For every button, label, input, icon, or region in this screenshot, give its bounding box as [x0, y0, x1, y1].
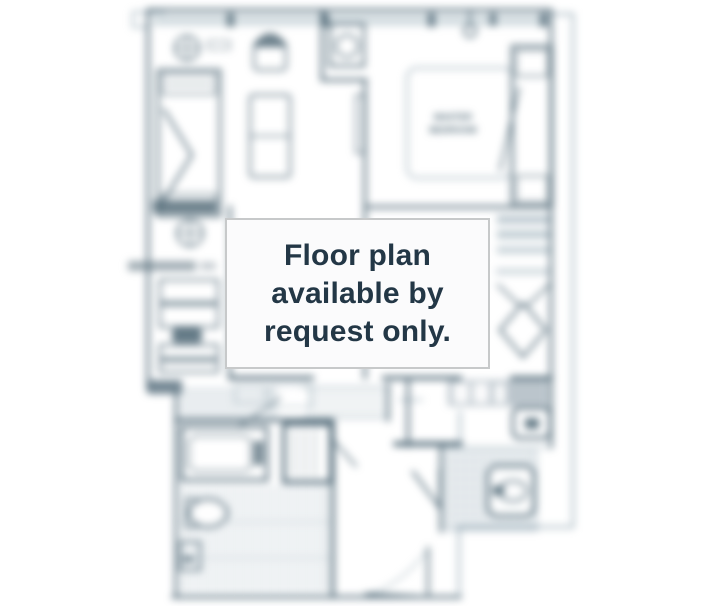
closet-shelves-left — [180, 390, 277, 418]
kitchen-sink-icon — [513, 408, 550, 438]
ceiling-fan2-icon — [177, 220, 203, 246]
toilet2-icon — [488, 466, 534, 516]
bathtub-icon — [182, 427, 267, 480]
kitchen-left-counter — [153, 200, 218, 372]
washer-icon — [330, 24, 364, 66]
chair-icon — [252, 33, 288, 70]
illegible-label-smudge — [128, 261, 216, 271]
kitchen-cabinets — [448, 380, 548, 406]
closet-dividers — [302, 387, 388, 418]
ceiling-fan-icon — [175, 36, 230, 60]
coffee-table-icon — [250, 95, 290, 177]
shower-icon — [284, 424, 356, 482]
master-bedroom-label-line1: MASTER — [434, 112, 473, 122]
notice-line-2: available by — [227, 275, 488, 313]
notice-line-3: request only. — [227, 313, 488, 351]
entry-door — [366, 548, 428, 597]
master-bedroom-label-line2: BEDROOM — [430, 125, 477, 135]
labels-group: MASTER BEDROOM — [430, 112, 477, 135]
closet-right-fixtures — [498, 285, 549, 357]
notice-line-1: Floor plan — [227, 237, 488, 275]
bed2-icon — [158, 70, 220, 216]
door-leaf — [356, 95, 364, 153]
floor-plan-notice: Floor plan available by request only. — [225, 218, 490, 369]
bath2-door — [413, 470, 440, 508]
toilet1-icon — [186, 499, 227, 527]
screenshot-root: MASTER BEDROOM Floor plan available by r… — [0, 0, 712, 606]
closet-shelves-right — [496, 215, 552, 275]
bath1-fixture — [180, 542, 200, 570]
